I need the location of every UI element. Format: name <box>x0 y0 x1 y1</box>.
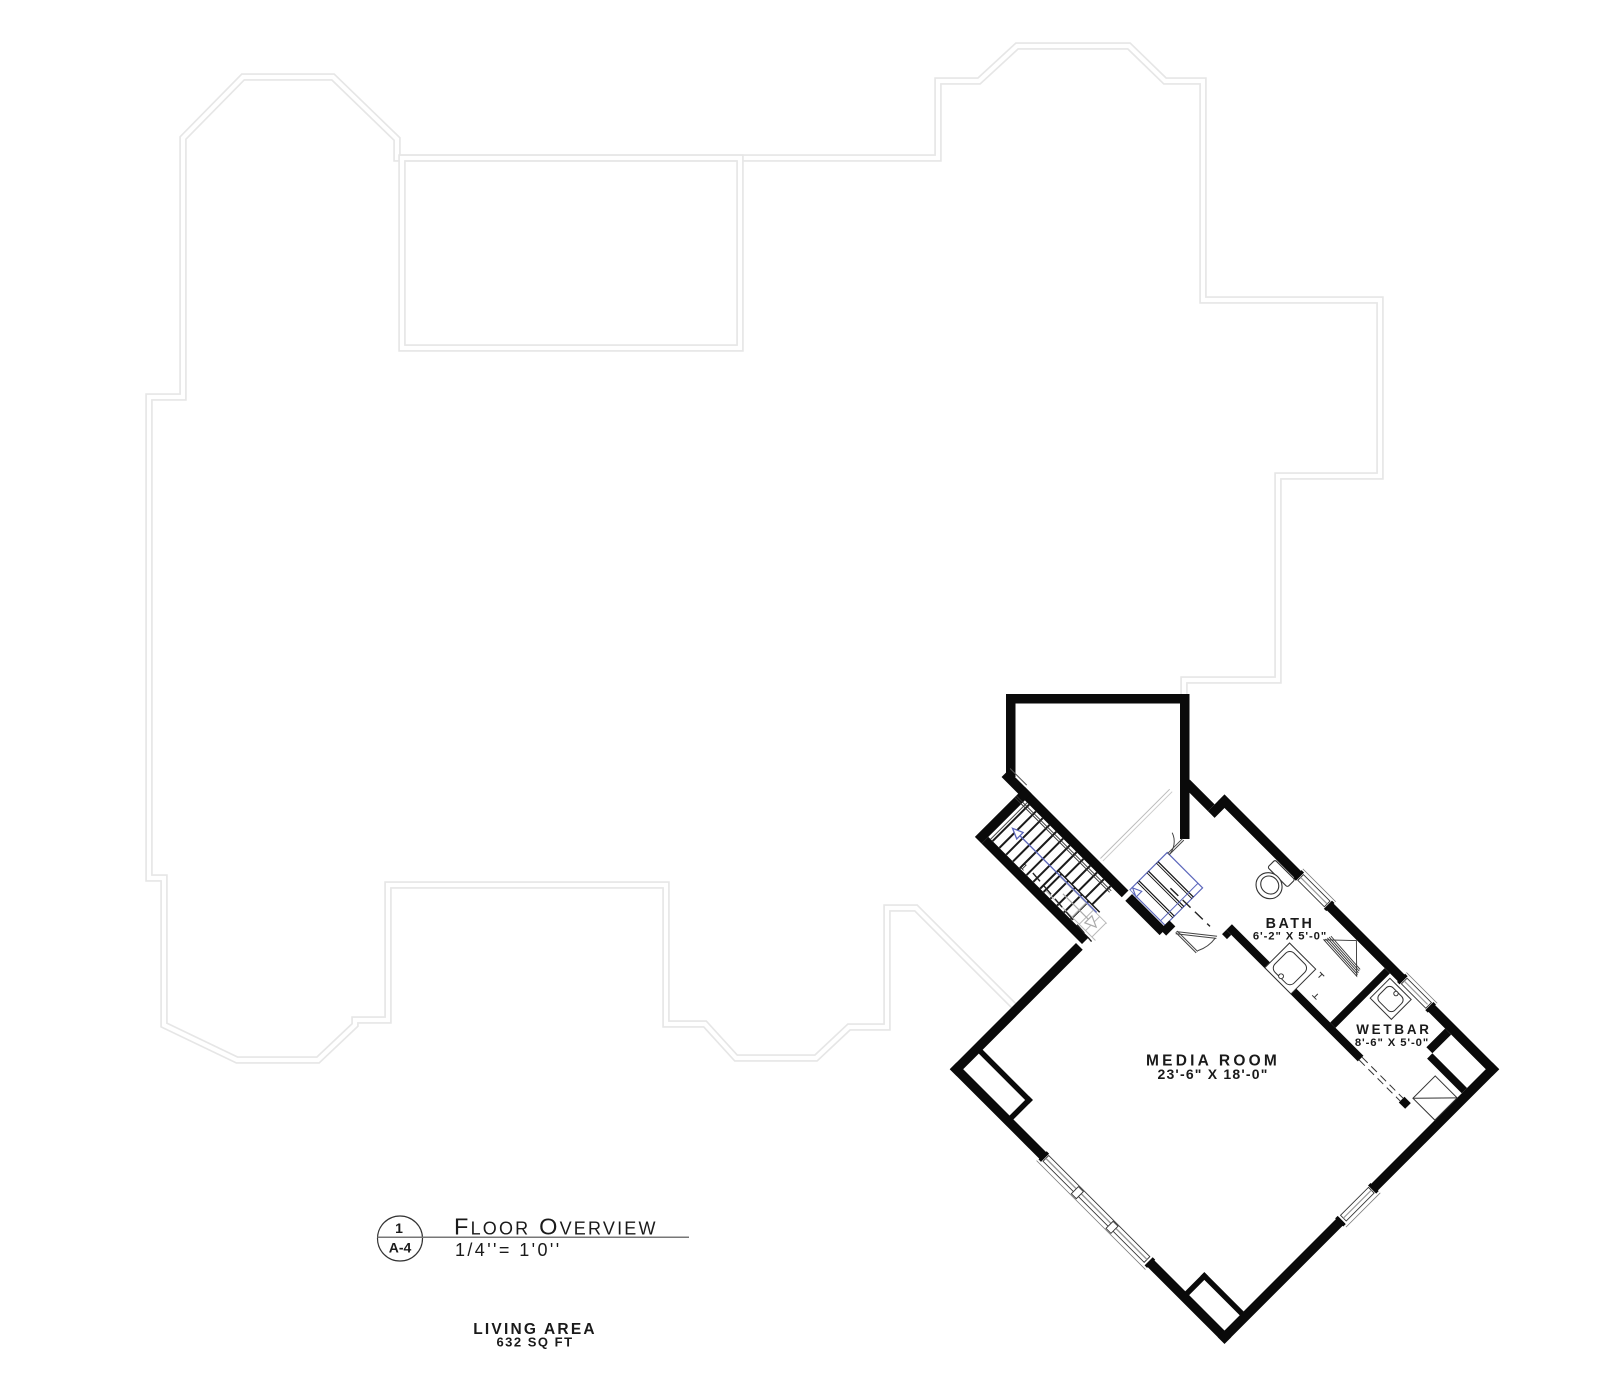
svg-text:6'-2" X 5'-0": 6'-2" X 5'-0" <box>1253 931 1327 943</box>
svg-text:8'-6" X 5'-0": 8'-6" X 5'-0" <box>1355 1037 1429 1049</box>
svg-text:1/4''= 1'0'': 1/4''= 1'0'' <box>455 1240 562 1260</box>
svg-text:WETBAR: WETBAR <box>1356 1022 1432 1037</box>
svg-text:632 SQ FT: 632 SQ FT <box>496 1335 573 1350</box>
svg-text:23'-6" X 18'-0": 23'-6" X 18'-0" <box>1157 1066 1268 1082</box>
svg-text:1: 1 <box>395 1220 403 1236</box>
svg-text:A-4: A-4 <box>389 1240 412 1256</box>
